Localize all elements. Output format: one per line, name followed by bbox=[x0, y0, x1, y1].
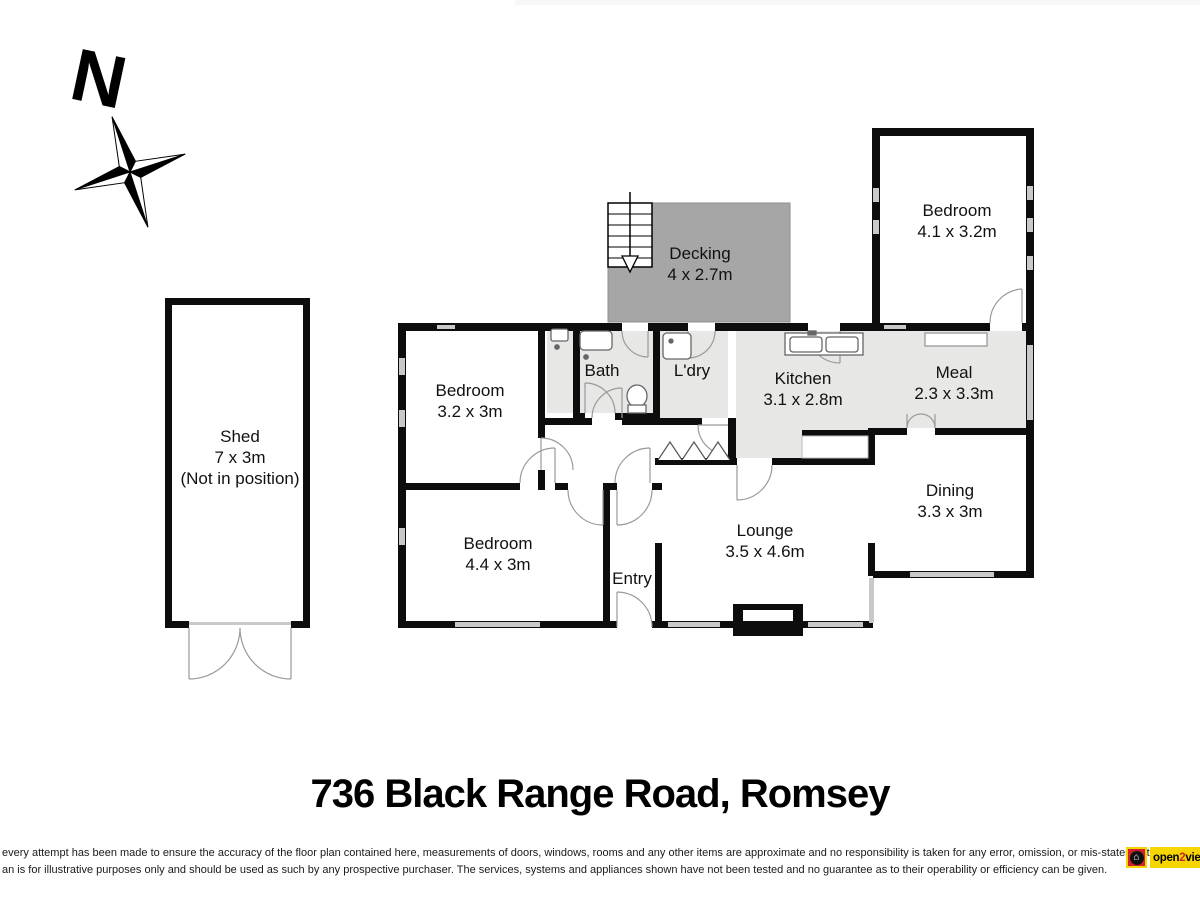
room-label-dining: Dining 3.3 x 3m bbox=[917, 480, 982, 522]
room-label-decking: Decking 4 x 2.7m bbox=[667, 243, 732, 285]
kitchen-double-sink-icon bbox=[785, 331, 863, 355]
room-dims: 3.3 x 3m bbox=[917, 502, 982, 521]
room-name: Shed bbox=[220, 427, 260, 446]
room-name: Meal bbox=[936, 363, 973, 382]
room-name: Entry bbox=[612, 569, 652, 588]
floor-plan-page: { "title": "736 Black Range Road, Romsey… bbox=[0, 0, 1200, 900]
bifold-door-icon bbox=[658, 442, 730, 460]
room-label-shed: Shed 7 x 3m (Not in position) bbox=[180, 426, 299, 489]
room-name: Dining bbox=[926, 481, 974, 500]
room-label-kitchen: Kitchen 3.1 x 2.8m bbox=[763, 368, 842, 410]
room-dims: 7 x 3m bbox=[214, 448, 265, 467]
disclaimer-line-1: every attempt has been made to ensure th… bbox=[2, 845, 1153, 862]
room-label-laundry: L'dry bbox=[674, 360, 710, 381]
toilet-icon bbox=[627, 385, 647, 413]
kitchen-bench bbox=[802, 436, 868, 458]
room-label-bedroom-sw: Bedroom 4.4 x 3m bbox=[464, 533, 533, 575]
room-dims: 3.2 x 3m bbox=[437, 402, 502, 421]
disclaimer-line-2: an is for illustrative purposes only and… bbox=[2, 862, 1107, 879]
room-name: Bath bbox=[585, 361, 620, 380]
compass-star-icon bbox=[57, 99, 203, 245]
open2view-house-icon: ⌂ bbox=[1126, 847, 1147, 868]
logo-view: view bbox=[1185, 852, 1200, 864]
page-title: 736 Black Range Road, Romsey bbox=[311, 772, 890, 817]
laundry-tub-icon bbox=[663, 333, 691, 359]
open2view-logo-text: open2view bbox=[1150, 847, 1200, 868]
room-name: Lounge bbox=[737, 521, 794, 540]
meal-window-bench bbox=[925, 333, 987, 346]
stairs-down-icon bbox=[608, 192, 652, 272]
room-label-bedroom-w: Bedroom 3.2 x 3m bbox=[436, 380, 505, 422]
room-label-entry: Entry bbox=[612, 568, 652, 589]
room-label-meal: Meal 2.3 x 3.3m bbox=[914, 362, 993, 404]
shed-doors bbox=[189, 628, 291, 679]
fireplace-icon bbox=[733, 604, 803, 636]
room-name: Bedroom bbox=[464, 534, 533, 553]
logo-open: open bbox=[1153, 852, 1179, 864]
room-name: L'dry bbox=[674, 361, 710, 380]
room-label-lounge: Lounge 3.5 x 4.6m bbox=[725, 520, 804, 562]
room-name: Bedroom bbox=[436, 381, 505, 400]
room-name: Decking bbox=[669, 244, 730, 263]
room-label-bedroom-ne: Bedroom 4.1 x 3.2m bbox=[917, 200, 996, 242]
room-note: (Not in position) bbox=[180, 469, 299, 488]
room-dims: 4.1 x 3.2m bbox=[917, 222, 996, 241]
room-name: Bedroom bbox=[923, 201, 992, 220]
room-dims: 2.3 x 3.3m bbox=[914, 384, 993, 403]
room-dims: 3.1 x 2.8m bbox=[763, 390, 842, 409]
open2view-logo: ⌂ open2view bbox=[1126, 847, 1200, 868]
room-name: Kitchen bbox=[775, 369, 832, 388]
room-dims: 4 x 2.7m bbox=[667, 265, 732, 284]
room-label-bath: Bath bbox=[585, 360, 620, 381]
room-dims: 3.5 x 4.6m bbox=[725, 542, 804, 561]
room-dims: 4.4 x 3m bbox=[465, 555, 530, 574]
